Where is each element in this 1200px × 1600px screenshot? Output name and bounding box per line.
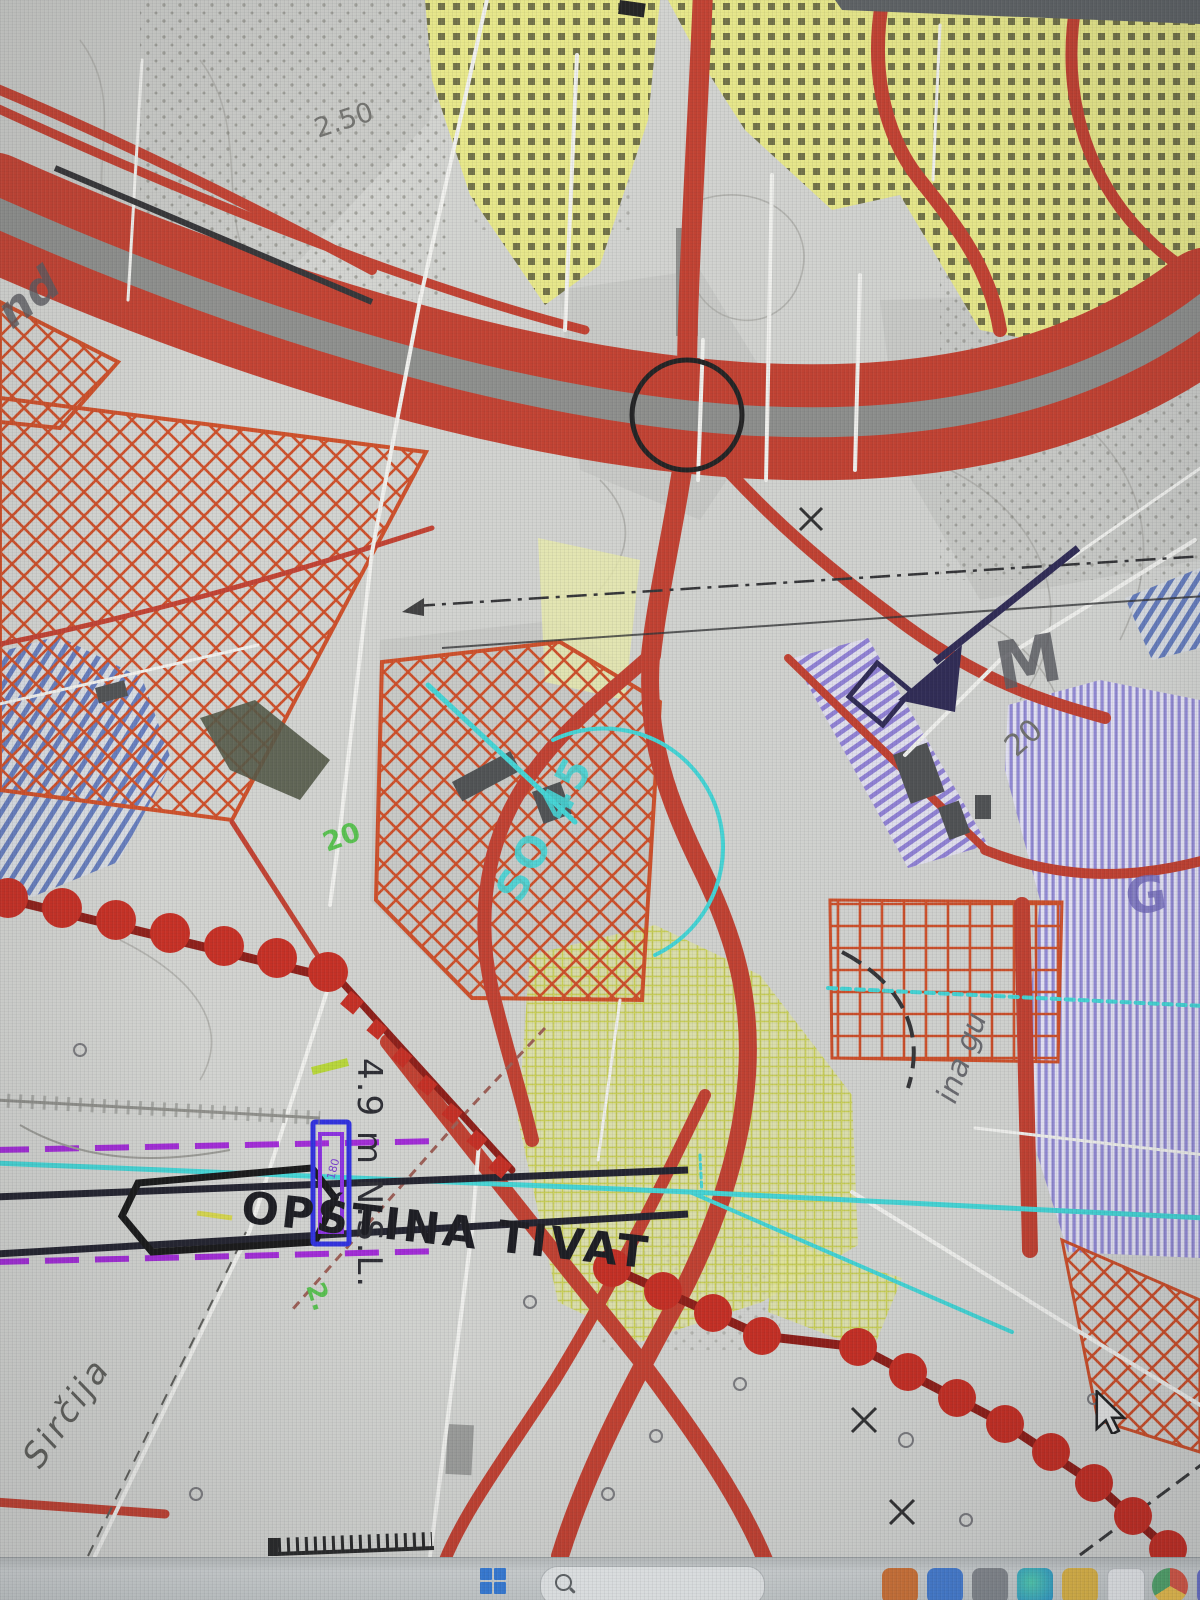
taskbar-app-gray-icon[interactable] (972, 1568, 1008, 1600)
planning-map[interactable]: OPŠTINA TIVAT Sirčija 4.9 m N.S.L. 2.50 … (0, 0, 1200, 1600)
taskbar-app-document-icon[interactable] (1107, 1568, 1145, 1600)
taskbar (0, 1557, 1200, 1600)
search-icon (555, 1574, 572, 1591)
taskbar-app-yellow-folder-icon[interactable] (1062, 1568, 1098, 1600)
windows-logo-icon (480, 1582, 492, 1594)
taskbar-app-teal-icon[interactable] (1017, 1568, 1053, 1600)
taskbar-app-blue-icon[interactable] (927, 1568, 963, 1600)
windows-logo-icon (494, 1582, 506, 1594)
label-letter-m: M (989, 619, 1067, 706)
start-button[interactable] (480, 1568, 506, 1594)
label-elevation: 4.9 m N.S.L. (349, 1058, 389, 1289)
screen: OPŠTINA TIVAT Sirčija 4.9 m N.S.L. 2.50 … (0, 0, 1200, 1600)
windows-logo-icon (480, 1568, 492, 1580)
map-viewport[interactable]: OPŠTINA TIVAT Sirčija 4.9 m N.S.L. 2.50 … (0, 0, 1200, 1600)
taskbar-app-orange-icon[interactable] (882, 1568, 918, 1600)
label-letter-g: G (1122, 864, 1171, 927)
taskbar-search[interactable] (540, 1566, 765, 1600)
taskbar-app-chrome-icon[interactable] (1152, 1568, 1188, 1600)
windows-logo-icon (494, 1568, 506, 1580)
